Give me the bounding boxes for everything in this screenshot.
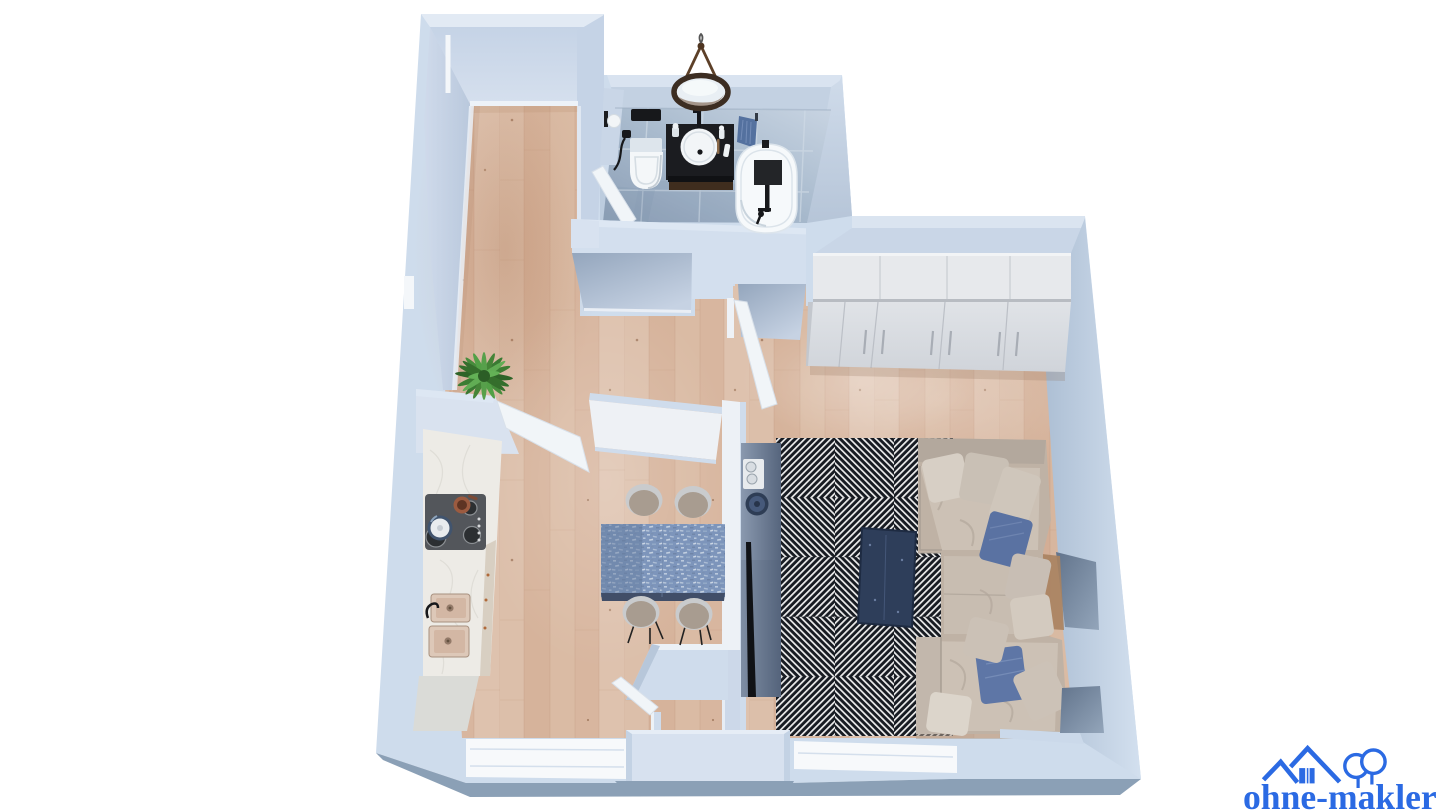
svg-text:ohne-makler: ohne-makler	[1243, 777, 1437, 810]
